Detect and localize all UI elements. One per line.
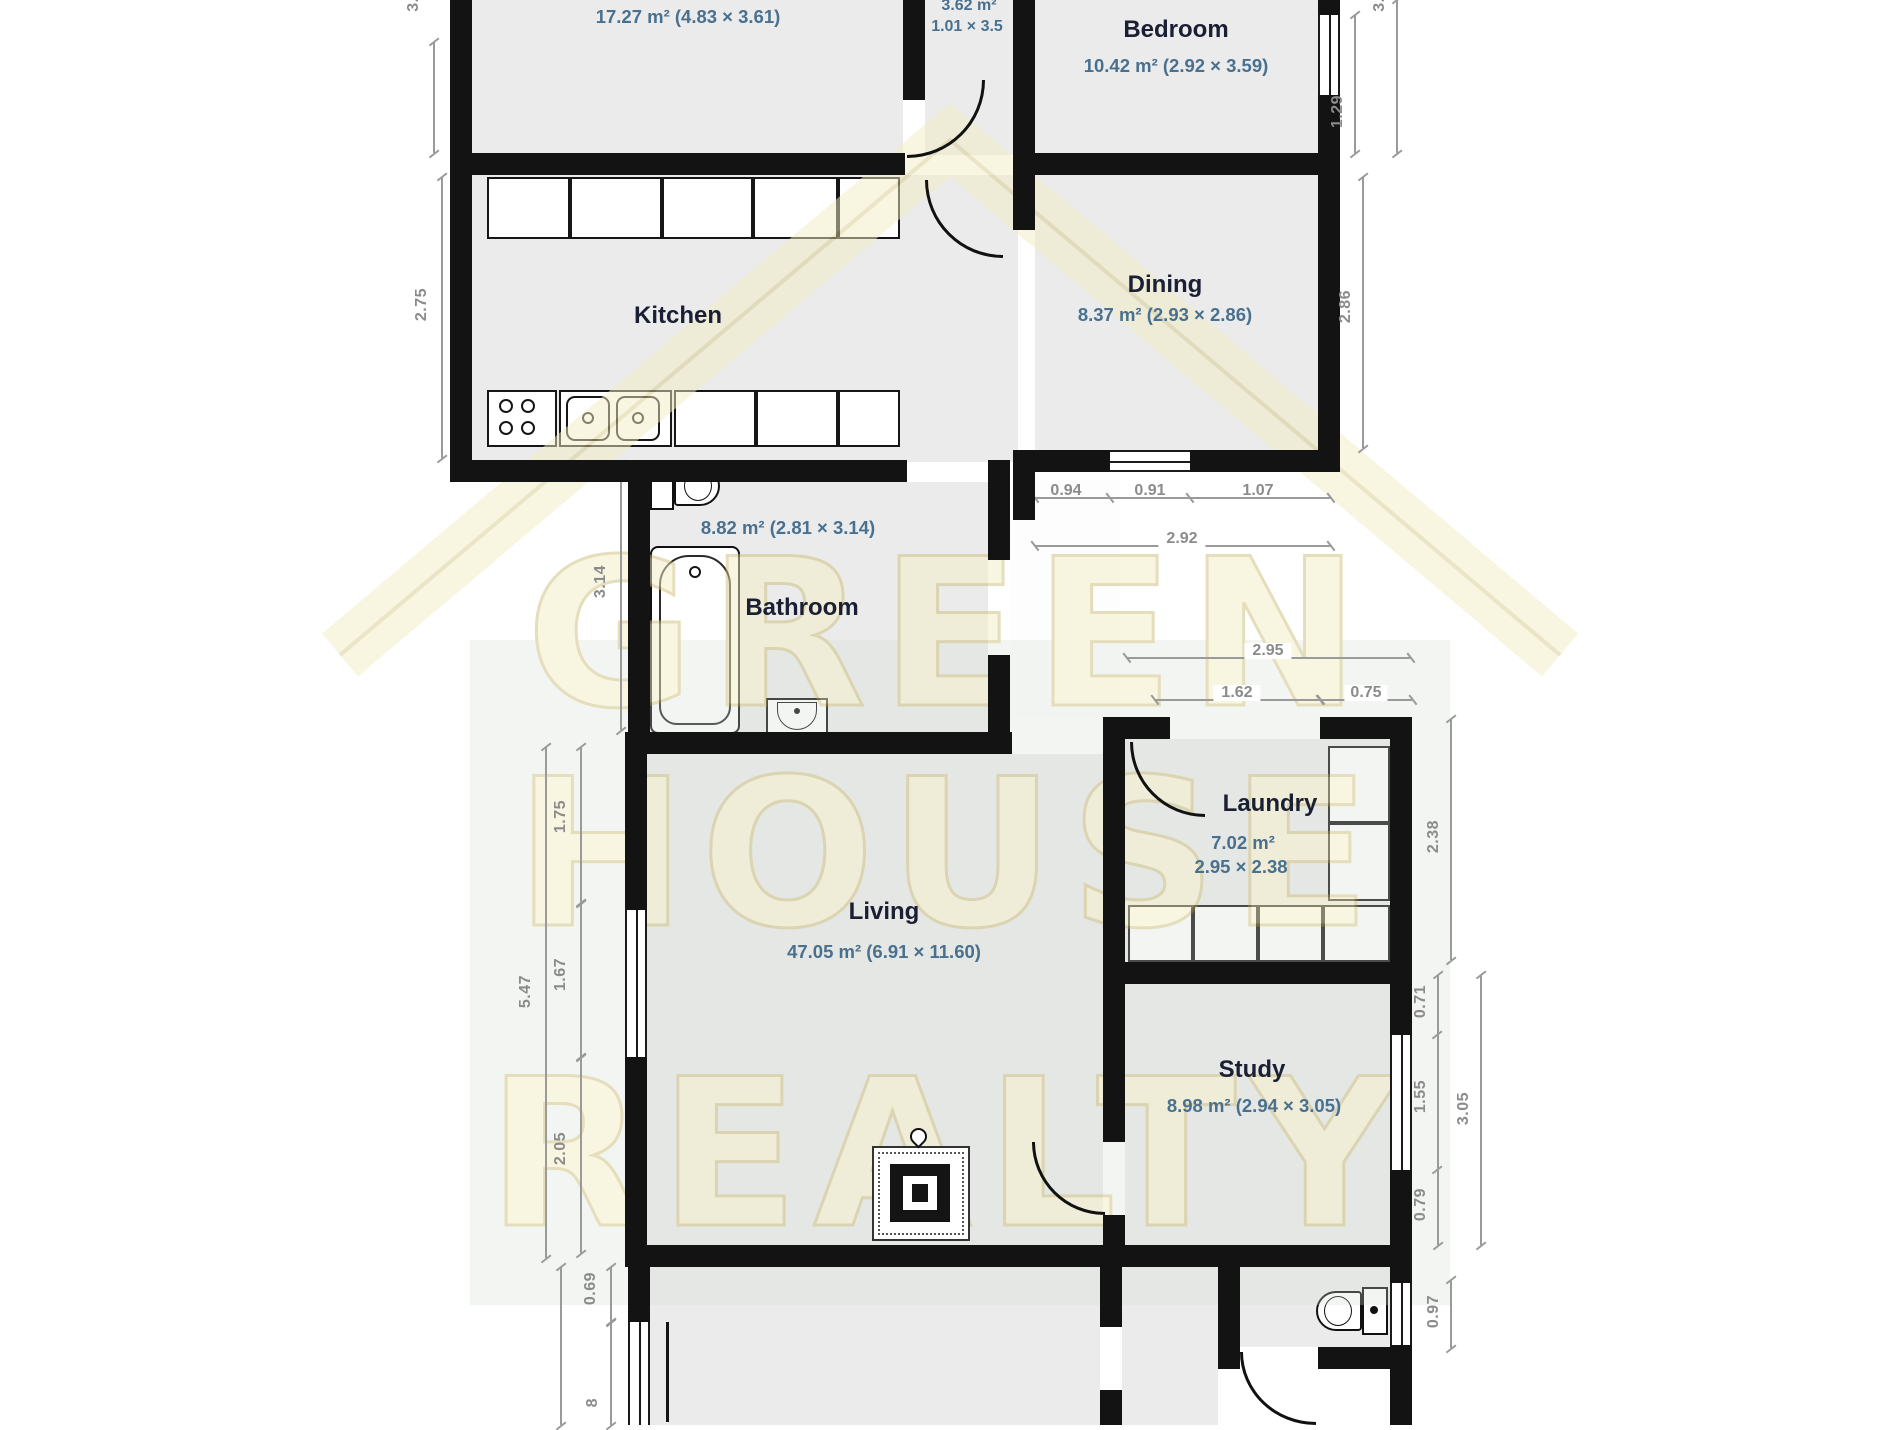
living-area: 47.05 m² (6.91 × 11.60) [787, 943, 981, 962]
wall [1035, 153, 1340, 175]
top-room-area: 17.27 m² (4.83 × 3.61) [596, 8, 781, 27]
dimension-label: 1.07 [1242, 483, 1273, 499]
open-door-leaf [666, 1322, 669, 1422]
laundry-label: Laundry [1223, 792, 1318, 816]
wall [628, 460, 650, 754]
bathtub-drain-icon [689, 566, 701, 578]
dining-area: 8.37 m² (2.93 × 2.86) [1078, 306, 1252, 325]
window [1318, 15, 1340, 95]
wall [1013, 450, 1035, 520]
dimension-label: 1.67 [553, 958, 569, 991]
kitchen-label: Kitchen [634, 304, 722, 328]
dimension-label: 3.14 [593, 565, 609, 598]
wall [450, 460, 907, 482]
dimension-line [1354, 15, 1356, 153]
dimension-label: 0.91 [1134, 483, 1165, 499]
kitchen-upper-cabinet [570, 177, 662, 239]
laundry-counter [1128, 905, 1193, 962]
wall [450, 175, 472, 482]
wall [1100, 1390, 1122, 1425]
toilet-bowl-inner [1324, 1296, 1352, 1326]
wall [1218, 1267, 1240, 1347]
dimension-label: 0.97 [1426, 1295, 1442, 1328]
kitchen-upper-cabinet [662, 177, 753, 239]
kitchen-upper-cabinet [753, 177, 838, 239]
laundry-counter [1193, 905, 1258, 962]
dimension-label: 8 [585, 1398, 601, 1407]
hall-dims: 1.01 × 3.5 [931, 19, 1003, 35]
dimension-label: 5.47 [518, 975, 534, 1008]
dimension-label: 0.94 [1050, 483, 1081, 499]
kitchen-upper-cabinet [838, 177, 900, 239]
laundry-appliance [1328, 823, 1390, 901]
dimension-line [610, 1267, 612, 1322]
dimension-label: 0.71 [1413, 985, 1429, 1018]
wall [628, 732, 1012, 754]
floor-plan-page: { "watermark": { "line1": "GREEN", "line… [0, 0, 1900, 1425]
dimension-line [1437, 975, 1439, 1245]
stove-burner-icon [499, 399, 513, 413]
dimension-line [580, 903, 582, 1057]
laundry-area: 7.02 m² [1211, 834, 1275, 853]
study-area: 8.98 m² (2.94 × 3.05) [1167, 1097, 1341, 1116]
living-label: Living [849, 900, 920, 924]
sink-drain-icon [582, 412, 594, 424]
dimension-label: 3.5 [406, 0, 422, 12]
laundry-counter [1258, 905, 1323, 962]
wall [1103, 962, 1412, 984]
stove-burner-icon [521, 399, 535, 413]
dimension-label: 3.05 [1456, 1092, 1472, 1125]
sink-drain-icon [632, 412, 644, 424]
dimension-line [580, 1057, 582, 1253]
dimension-label: 0.69 [583, 1272, 599, 1305]
fireplace-core [912, 1184, 928, 1202]
dimension-line [620, 464, 622, 730]
kitchen-upper-cabinet [487, 177, 570, 239]
wall [1100, 1267, 1122, 1327]
dimension-line [441, 177, 443, 458]
bottom-corridor-floor [1122, 1267, 1218, 1425]
dimension-label: 2.95 [1244, 643, 1291, 659]
bathroom-area: 8.82 m² (2.81 × 3.14) [701, 519, 875, 538]
dimension-label: 1.55 [1413, 1080, 1429, 1113]
wall [450, 153, 905, 175]
dimension-line [560, 1267, 562, 1425]
wall [625, 1245, 1412, 1267]
door-arc [1240, 1352, 1316, 1425]
wall [1390, 717, 1412, 962]
dimension-label: 1.62 [1213, 685, 1260, 701]
hall-area: 3.62 m² [941, 0, 996, 14]
dimension-label: 2.86 [1338, 290, 1354, 323]
kitchen-counter [756, 390, 838, 447]
dimension-line [1396, 0, 1398, 153]
window [1110, 450, 1190, 472]
dining-label: Dining [1128, 273, 1203, 297]
stove-burner-icon [521, 421, 535, 435]
window [1390, 1035, 1412, 1170]
window [628, 1322, 650, 1425]
stove [487, 390, 557, 447]
washbasin-drain-icon [794, 708, 800, 714]
dimension-line [433, 42, 435, 153]
wall [988, 460, 1010, 560]
dimension-line [580, 747, 582, 903]
dimension-label: 0.75 [1344, 685, 1387, 701]
kitchen-counter [674, 390, 756, 447]
dimension-label: 1.75 [553, 800, 569, 833]
dimension-label: 2.75 [414, 288, 430, 321]
study-label: Study [1219, 1058, 1286, 1082]
wall [1103, 717, 1125, 1142]
wall [628, 1267, 650, 1322]
dimension-label: 1.29 [1330, 95, 1346, 128]
bathroom-label: Bathroom [745, 596, 858, 620]
window [1390, 1283, 1412, 1345]
dimension-label: 2.05 [553, 1132, 569, 1165]
laundry-counter [1323, 905, 1390, 962]
dimension-line [1480, 975, 1482, 1245]
toilet-button-icon [1370, 1306, 1378, 1314]
dimension-label: 0.79 [1413, 1188, 1429, 1221]
kitchen-counter [838, 390, 900, 447]
dimension-label: 3.5 [1372, 0, 1388, 12]
dimension-line [545, 747, 547, 1258]
stove-burner-icon [499, 421, 513, 435]
window [625, 910, 647, 1057]
wall [1218, 1347, 1240, 1369]
bathtub-inner [659, 555, 731, 725]
bedroom-label: Bedroom [1123, 18, 1228, 42]
laundry-dims: 2.95 × 2.38 [1194, 858, 1287, 877]
dimension-line [1362, 177, 1364, 448]
dimension-line [1450, 719, 1452, 960]
dimension-label: 2.92 [1158, 531, 1205, 547]
dimension-line [1450, 1280, 1452, 1348]
bottom-left-room-floor [650, 1267, 1100, 1425]
wall [450, 0, 472, 175]
dimension-line [610, 1322, 612, 1425]
laundry-appliance [1328, 746, 1390, 823]
wall [1013, 0, 1035, 230]
bedroom-area: 10.42 m² (2.92 × 3.59) [1084, 57, 1269, 76]
dimension-label: 2.38 [1426, 820, 1442, 853]
